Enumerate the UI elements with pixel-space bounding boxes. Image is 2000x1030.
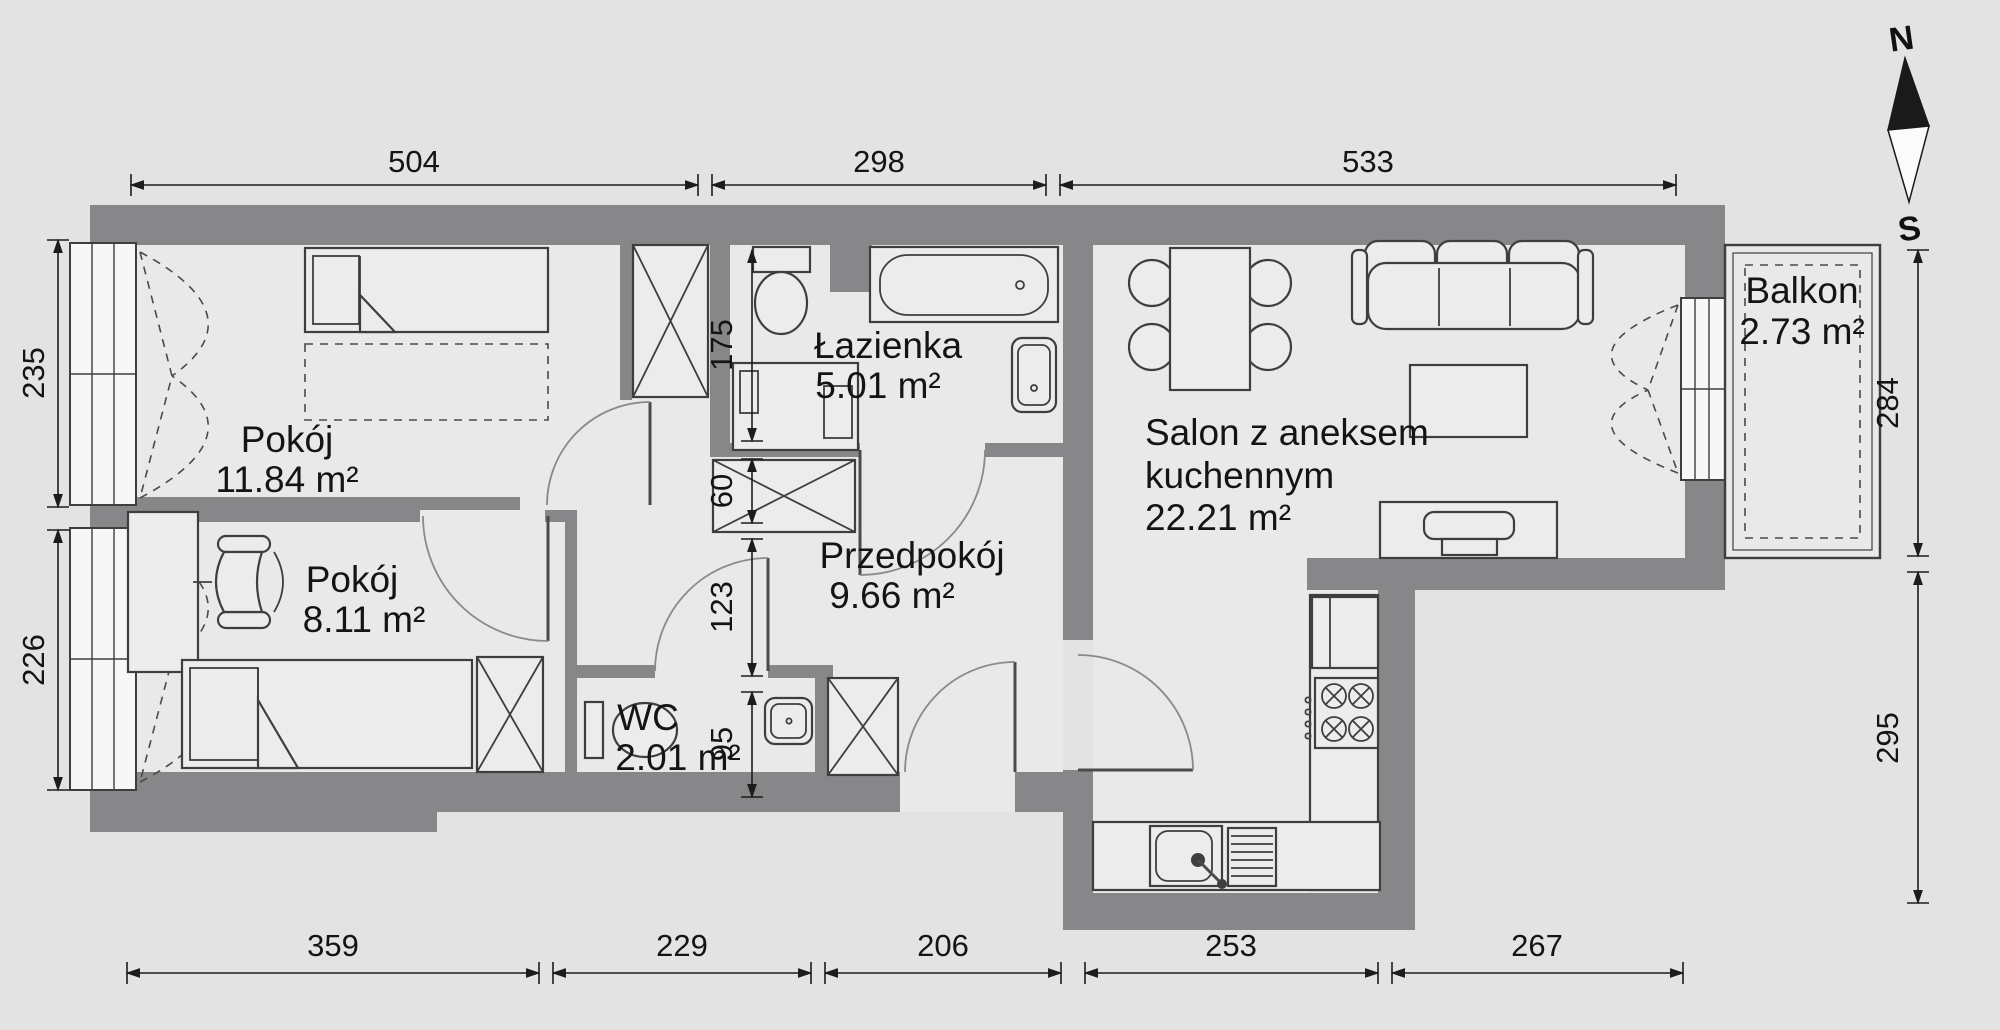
dim-chain-left: 235 226 [16,240,69,790]
wardrobe-pokoj2 [477,657,543,772]
dim-chain-bottom: 359 229 206 253 267 [127,928,1683,984]
wall-kitchen-bottom [1063,893,1415,930]
label-salon-name-1: Salon z aneksem [1145,412,1429,453]
sink-bathroom [1012,338,1056,412]
wardrobe-corridor [633,245,708,397]
kitchen-sink [1150,826,1227,889]
label-balkon-area: 2.73 m² [1739,311,1864,352]
dim-inner-175: 175 [704,319,739,371]
dim-left-235: 235 [16,347,51,399]
tv-cabinet [1380,502,1557,558]
label-pokoj1-name: Pokój [241,419,334,460]
label-balkon-name: Balkon [1745,270,1858,311]
wall-hall-salon-upper [1063,245,1093,640]
label-przedpokoj-name: Przedpokój [819,535,1004,576]
wall-pokoj2-right [565,510,577,772]
floor-plan-drawing: Pokój 11.84 m² Pokój 8.11 m² Łazienka 5.… [0,0,2000,1030]
dim-left-226: 226 [16,634,51,686]
dim-bottom-229: 229 [656,928,708,963]
label-pokoj2-name: Pokój [306,559,399,600]
wall-salon-south [1307,558,1690,590]
dim-top-533: 533 [1342,144,1394,179]
bed-pokoj1 [305,248,548,332]
dim-right-284: 284 [1870,377,1905,429]
dim-bottom-253: 253 [1205,928,1257,963]
label-pokoj2-area: 8.11 m² [303,599,426,640]
wall-pokoj1-right [620,245,632,400]
dim-inner-123: 123 [704,581,739,633]
floor-plan-page: Pokój 11.84 m² Pokój 8.11 m² Łazienka 5.… [0,0,2000,1030]
dim-bottom-206: 206 [917,928,969,963]
wall-bottom-entry [1015,772,1063,812]
label-salon-area: 22.21 m² [1145,497,1291,538]
wall-wc-right [815,665,828,775]
compass-south-label: S [1896,209,1924,250]
label-pokoj1-area: 11.84 m² [215,459,358,500]
dim-inner-60: 60 [704,474,739,508]
wall-bathroom-stub [830,245,872,292]
label-salon-name-2: kuchennym [1145,455,1334,496]
label-lazienka-area: 5.01 m² [815,365,940,406]
label-wc-name: WC [617,697,679,738]
stove [1305,678,1378,748]
fridge [1312,597,1378,668]
dim-chain-top: 504 298 533 [131,144,1676,196]
wall-kitchen-right [1378,590,1415,893]
label-lazienka-name: Łazienka [814,325,963,366]
compass-north-label: N [1887,19,1917,60]
label-przedpokoj-area: 9.66 m² [829,575,954,616]
wall-wc-top-a [565,665,655,678]
kitchen-drainer [1228,828,1276,886]
sofa [1352,241,1593,329]
dim-top-298: 298 [853,144,905,179]
desk-pokoj2 [128,512,198,672]
sink-wc [765,698,812,744]
wardrobe-entry [828,678,898,775]
bed-pokoj2 [182,660,472,768]
compass: N S [1887,19,1929,250]
bathtub [870,247,1058,322]
dim-right-295: 295 [1870,712,1905,764]
dim-bottom-267: 267 [1511,928,1563,963]
wall-bottom-lip [90,812,437,832]
dim-bottom-359: 359 [307,928,359,963]
wall-top [90,205,1725,245]
dim-top-504: 504 [388,144,440,179]
toilet-bathroom [753,247,810,334]
dim-inner-95: 95 [704,727,739,761]
compass-needle-south [1888,126,1929,202]
wall-bottom-left [90,772,900,812]
compass-needle-north [1888,58,1929,130]
wall-bathroom-bottom-b [985,443,1063,457]
